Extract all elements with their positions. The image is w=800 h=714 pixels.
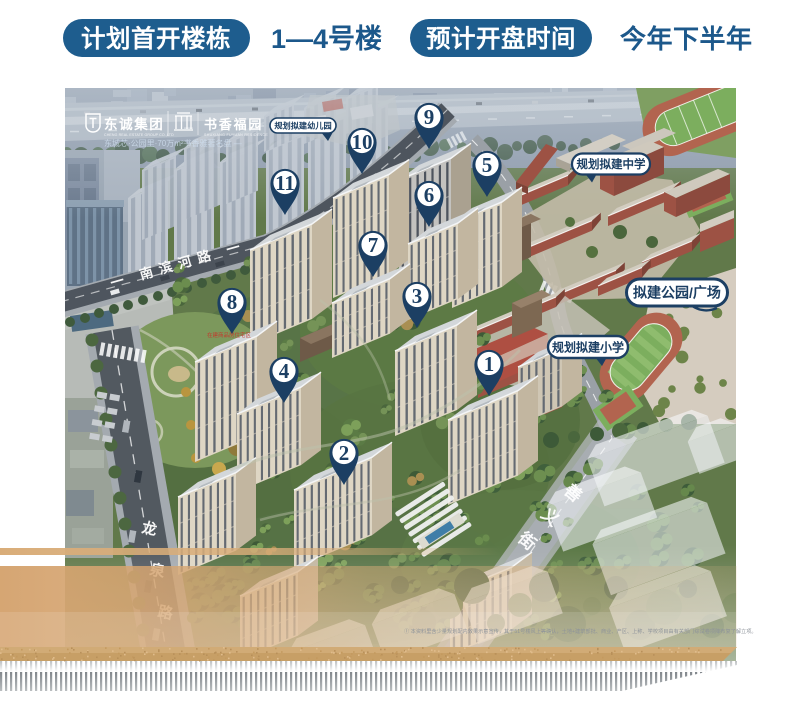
svg-text:11: 11 <box>275 171 295 195</box>
svg-text:书香福园: 书香福园 <box>204 117 263 132</box>
svg-text:规划拟建小学: 规划拟建小学 <box>552 339 624 354</box>
svg-text:拟建公园/广场: 拟建公园/广场 <box>633 285 721 301</box>
svg-text:2: 2 <box>339 441 350 465</box>
svg-text:5: 5 <box>482 153 493 177</box>
svg-text:10: 10 <box>352 130 373 154</box>
svg-text:9: 9 <box>424 105 435 129</box>
svg-text:规划拟建中学: 规划拟建中学 <box>577 157 646 171</box>
svg-text:① 本资料里含少量规划配内效果示意宣传，其于51号楼风上等确: ① 本资料里含少量规划配内效果示意宣传，其于51号楼风上等确认，土地+建筑部批、… <box>404 627 757 635</box>
svg-text:6: 6 <box>424 183 435 207</box>
svg-text:1—4号楼: 1—4号楼 <box>271 24 382 54</box>
svg-text:规划拟建幼儿园: 规划拟建幼儿园 <box>274 120 331 130</box>
svg-text:计划首开楼栋: 计划首开楼栋 <box>81 24 231 53</box>
svg-text:今年下半年: 今年下半年 <box>620 24 753 54</box>
svg-text:8: 8 <box>227 290 238 314</box>
svg-text:在建商品房住宅区: 在建商品房住宅区 <box>207 331 252 339</box>
svg-text:SHUXIANG FUYUAN RESIDENCE: SHUXIANG FUYUAN RESIDENCE <box>204 133 268 137</box>
svg-text:7: 7 <box>368 233 379 257</box>
svg-text:1: 1 <box>484 352 495 376</box>
svg-text:CHENG REAL ESTATE GROUP CO.,LT: CHENG REAL ESTATE GROUP CO.,LTD <box>104 133 174 137</box>
svg-text:3: 3 <box>412 284 423 308</box>
svg-text:4: 4 <box>279 359 290 383</box>
svg-text:东城芯·公园里·70万m²书香雅著名盘 —: 东城芯·公园里·70万m²书香雅著名盘 — <box>104 138 242 148</box>
svg-text:东诚集团: 东诚集团 <box>104 116 164 132</box>
svg-text:预计开盘时间: 预计开盘时间 <box>426 24 576 53</box>
